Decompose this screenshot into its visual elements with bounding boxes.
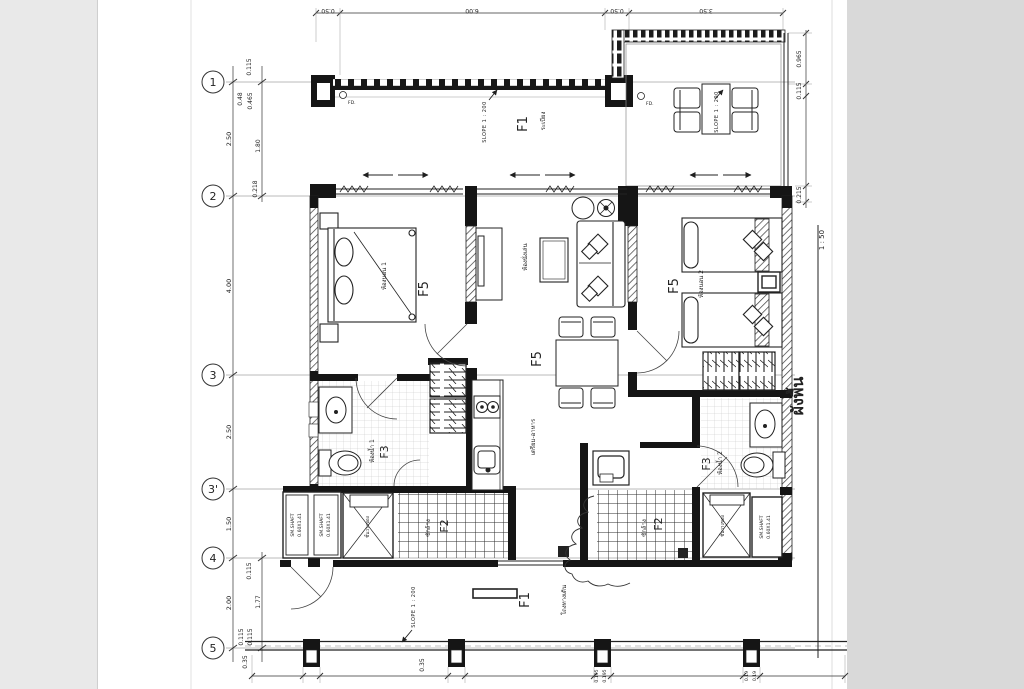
drawing-scale: 1 : 50: [818, 230, 826, 250]
dim-top-050a: 0.50: [321, 7, 335, 14]
scanned-floorplan-page: 1 2 3 3' 4 5 2.50 4.00 2.50 1.50 2: [0, 0, 1024, 689]
room-label-shelfL: ชั้นวางของ: [364, 516, 371, 538]
slope-note-balcony: SLOPE 1 : 200: [482, 101, 488, 143]
wall-bottom-b: [563, 560, 700, 567]
dim-bottom-019b: 0.19: [752, 671, 758, 681]
room-label-bedroom1-name: ห้องนอน 1: [381, 262, 388, 290]
left-dimension-labels: 2.50 4.00 2.50 1.50 2.00 0.115 0.48 0.46…: [225, 58, 262, 668]
grid-bubble-5-label: 5: [210, 642, 217, 655]
dim-li-035: 0.35: [242, 655, 249, 669]
dim-bottom-019a: 0.19: [744, 671, 750, 681]
room-label-bedroom1-code: F5: [417, 281, 432, 297]
tv-cabinet: [476, 228, 502, 300]
balcony-railing: [333, 79, 605, 90]
drawing-title: ผังพื้น: [785, 377, 807, 416]
dim-li-0115b: 0.115: [247, 628, 254, 645]
corridor-structure: 0.35 0.195 0.195 0.19 0.19: [245, 639, 848, 683]
room-label-kitchen-name: เตรียม-อาหาร: [529, 418, 537, 455]
grid-bubbles: 1 2 3 3' 4 5: [202, 71, 224, 659]
dim-top-600: 6.00: [465, 7, 479, 14]
bath2-cistern: [773, 452, 785, 478]
grid-bubble-2-label: 2: [210, 190, 217, 203]
dim-top-350: 3.50: [699, 7, 713, 14]
bed1: [320, 213, 416, 342]
dim-li-0218: 0.218: [252, 180, 259, 197]
dim-bottom-035: 0.35: [419, 658, 426, 672]
dim-li-0465: 0.465: [247, 92, 254, 109]
room-label-laundryR-code: F2: [652, 517, 665, 530]
room-label-bath2-code: F3: [700, 457, 713, 470]
dim-li-177: 1.77: [255, 595, 262, 609]
floor-drain-left: [558, 546, 569, 557]
room-label-shelfR: ชั้นวางของ: [719, 515, 726, 537]
terrace-trellis-left: [612, 30, 624, 78]
room-label-balcony-name: ระเบียง: [539, 112, 547, 131]
furniture: [283, 84, 785, 598]
wall-bath2-left-a: [692, 397, 700, 445]
floorplan-drawing: 1 2 3 3' 4 5 2.50 4.00 2.50 1.50 2: [0, 0, 1024, 689]
shaftL2-line2: 0.60X1.41: [326, 513, 332, 537]
living-decor-circles: [572, 197, 615, 219]
dim-top-050b: 0.50: [610, 7, 624, 14]
wall-bottom-c: [700, 560, 792, 567]
coffee-table-inner: [543, 241, 565, 279]
dim-li-0115a: 0.115: [238, 628, 245, 645]
shaftL1-line1: SM.SHAFT: [290, 513, 296, 536]
floor-drain-right: [678, 548, 688, 558]
dim-li-048: 0.48: [237, 92, 244, 106]
column-g2-mid2: [618, 186, 638, 226]
sofa: [577, 221, 625, 307]
right-dimension-chain: 0.965 0.115 0.215: [788, 30, 812, 208]
grid-bubble-3-label: 3: [210, 369, 217, 382]
wall-bath1-top-right: [397, 374, 430, 381]
dim-right-0115: 0.115: [796, 82, 803, 99]
dim-left-2_50a: 2.50: [225, 132, 233, 146]
room-label-balcony-code: F1: [516, 116, 531, 132]
nightstand2: [758, 272, 780, 292]
dim-left-2_00: 2.00: [225, 596, 233, 610]
wall-f2r-left: [580, 443, 588, 560]
floor-drain-symbol-terrace: [638, 93, 645, 100]
shaftR-line2: 0.60X1.41: [766, 515, 772, 539]
room-label-laundryL-name: ซักล้าง: [425, 519, 432, 537]
dim-li-0115t: 0.115: [246, 58, 253, 75]
room-label-bedroom2-name: ห้องนอน 2: [698, 270, 705, 298]
nightstand1a: [320, 213, 338, 229]
wardrobe-hall-a: [430, 363, 466, 397]
washing-machine: [593, 451, 629, 485]
bed2-twin-b: [682, 293, 782, 347]
wall-bottom-a: [333, 560, 470, 567]
dim-bottom-0195a: 0.195: [594, 669, 600, 682]
kitchen-counter: [472, 380, 503, 490]
dim-li-180: 1.80: [255, 139, 262, 153]
wall-foyer-left: [508, 492, 516, 560]
shaftR-line1: SM.SHAFT: [759, 515, 765, 538]
terrace-trellis-top: [622, 30, 785, 42]
dim-right-0965: 0.965: [796, 50, 803, 67]
shaftL1-line2: 0.60X1.41: [297, 513, 303, 537]
nightstand1b: [320, 324, 338, 342]
fd-label-balcony: FD.: [348, 100, 356, 106]
wall-bath1-top-left: [318, 374, 358, 381]
dim-li-0115g4: 0.115: [246, 562, 253, 579]
grid-bubble-4-label: 4: [210, 552, 217, 565]
entry-step: [473, 589, 517, 598]
room-label-corridor-code: F1: [518, 592, 533, 608]
dim-left-2_50b: 2.50: [225, 425, 233, 439]
room-label-corridor-name: โถงทางเดิน: [560, 585, 568, 615]
dim-left-4_00: 4.00: [225, 279, 233, 293]
dim-left-1_50: 1.50: [225, 517, 233, 531]
room-label-bath1-code: F3: [378, 445, 391, 458]
room-label-dining-code: F5: [530, 351, 545, 367]
dim-right-0215: 0.215: [796, 186, 803, 203]
column-g2-mid1: [465, 186, 477, 226]
wall-bed2-bath2: [637, 390, 792, 397]
wardrobe-bed2-b: [739, 352, 775, 390]
room-label-bedroom2-code: F5: [667, 278, 682, 294]
wall-bed1-living: [466, 226, 476, 302]
wardrobe-hall-b: [430, 399, 466, 433]
wall-living-bed2: [628, 226, 637, 302]
slope-note-terrace: SLOPE 1 : 200: [714, 91, 720, 133]
grid-bubble-3p-label: 3': [208, 483, 218, 496]
slope-note-corridor: SLOPE 1 : 200: [411, 586, 417, 628]
laundry-left-tiles: [398, 492, 508, 558]
bed2-twin-a: [682, 218, 782, 272]
dining-set: [556, 317, 618, 408]
room-label-laundryL-code: F2: [438, 519, 451, 532]
shelf-right-box: [703, 493, 750, 557]
room-label-laundryR-name: ซักล้าง: [641, 519, 648, 537]
grid2-windows: [336, 175, 770, 194]
shaftL2-line1: SM.SHAFT: [319, 513, 325, 536]
wall-bath2-left-b: [692, 487, 700, 560]
grid-bubble-1-label: 1: [210, 76, 217, 89]
dim-bottom-0195b: 0.195: [602, 669, 608, 682]
floor-drain-symbol-balcony: [340, 92, 347, 99]
room-label-living-name: ห้องนั่งเล่น: [521, 243, 529, 270]
fd-label-terrace: FD.: [646, 101, 654, 107]
wardrobe-bed2-a: [703, 352, 739, 390]
wall-f2r-top: [640, 442, 700, 448]
